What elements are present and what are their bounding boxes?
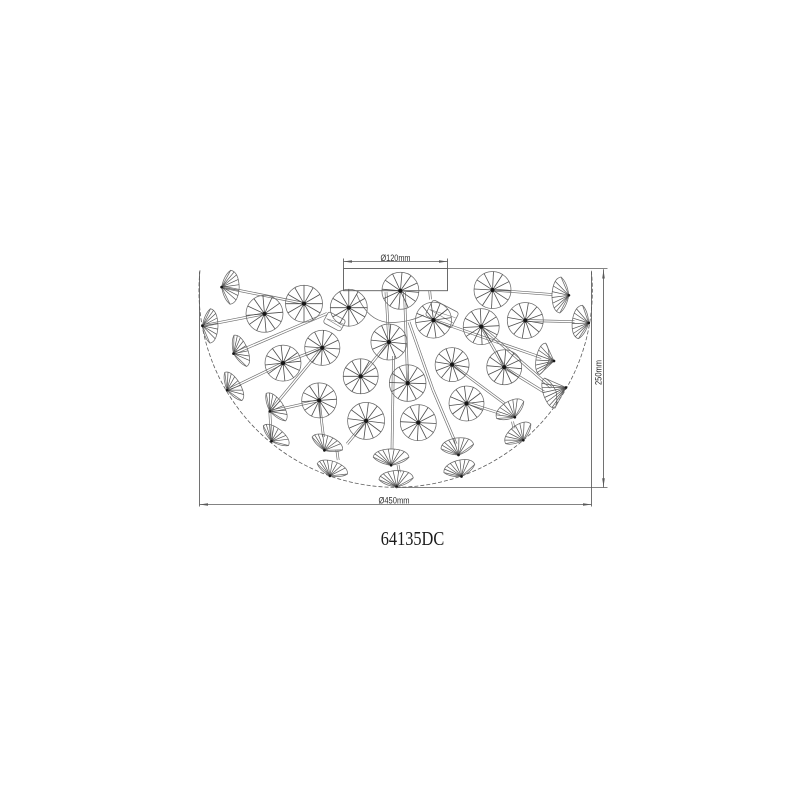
svg-text:Ø450mm: Ø450mm (379, 495, 410, 505)
svg-text:Ø120mm: Ø120mm (381, 253, 411, 263)
svg-text:64135DC: 64135DC (381, 528, 445, 550)
svg-text:250mm: 250mm (594, 360, 604, 385)
